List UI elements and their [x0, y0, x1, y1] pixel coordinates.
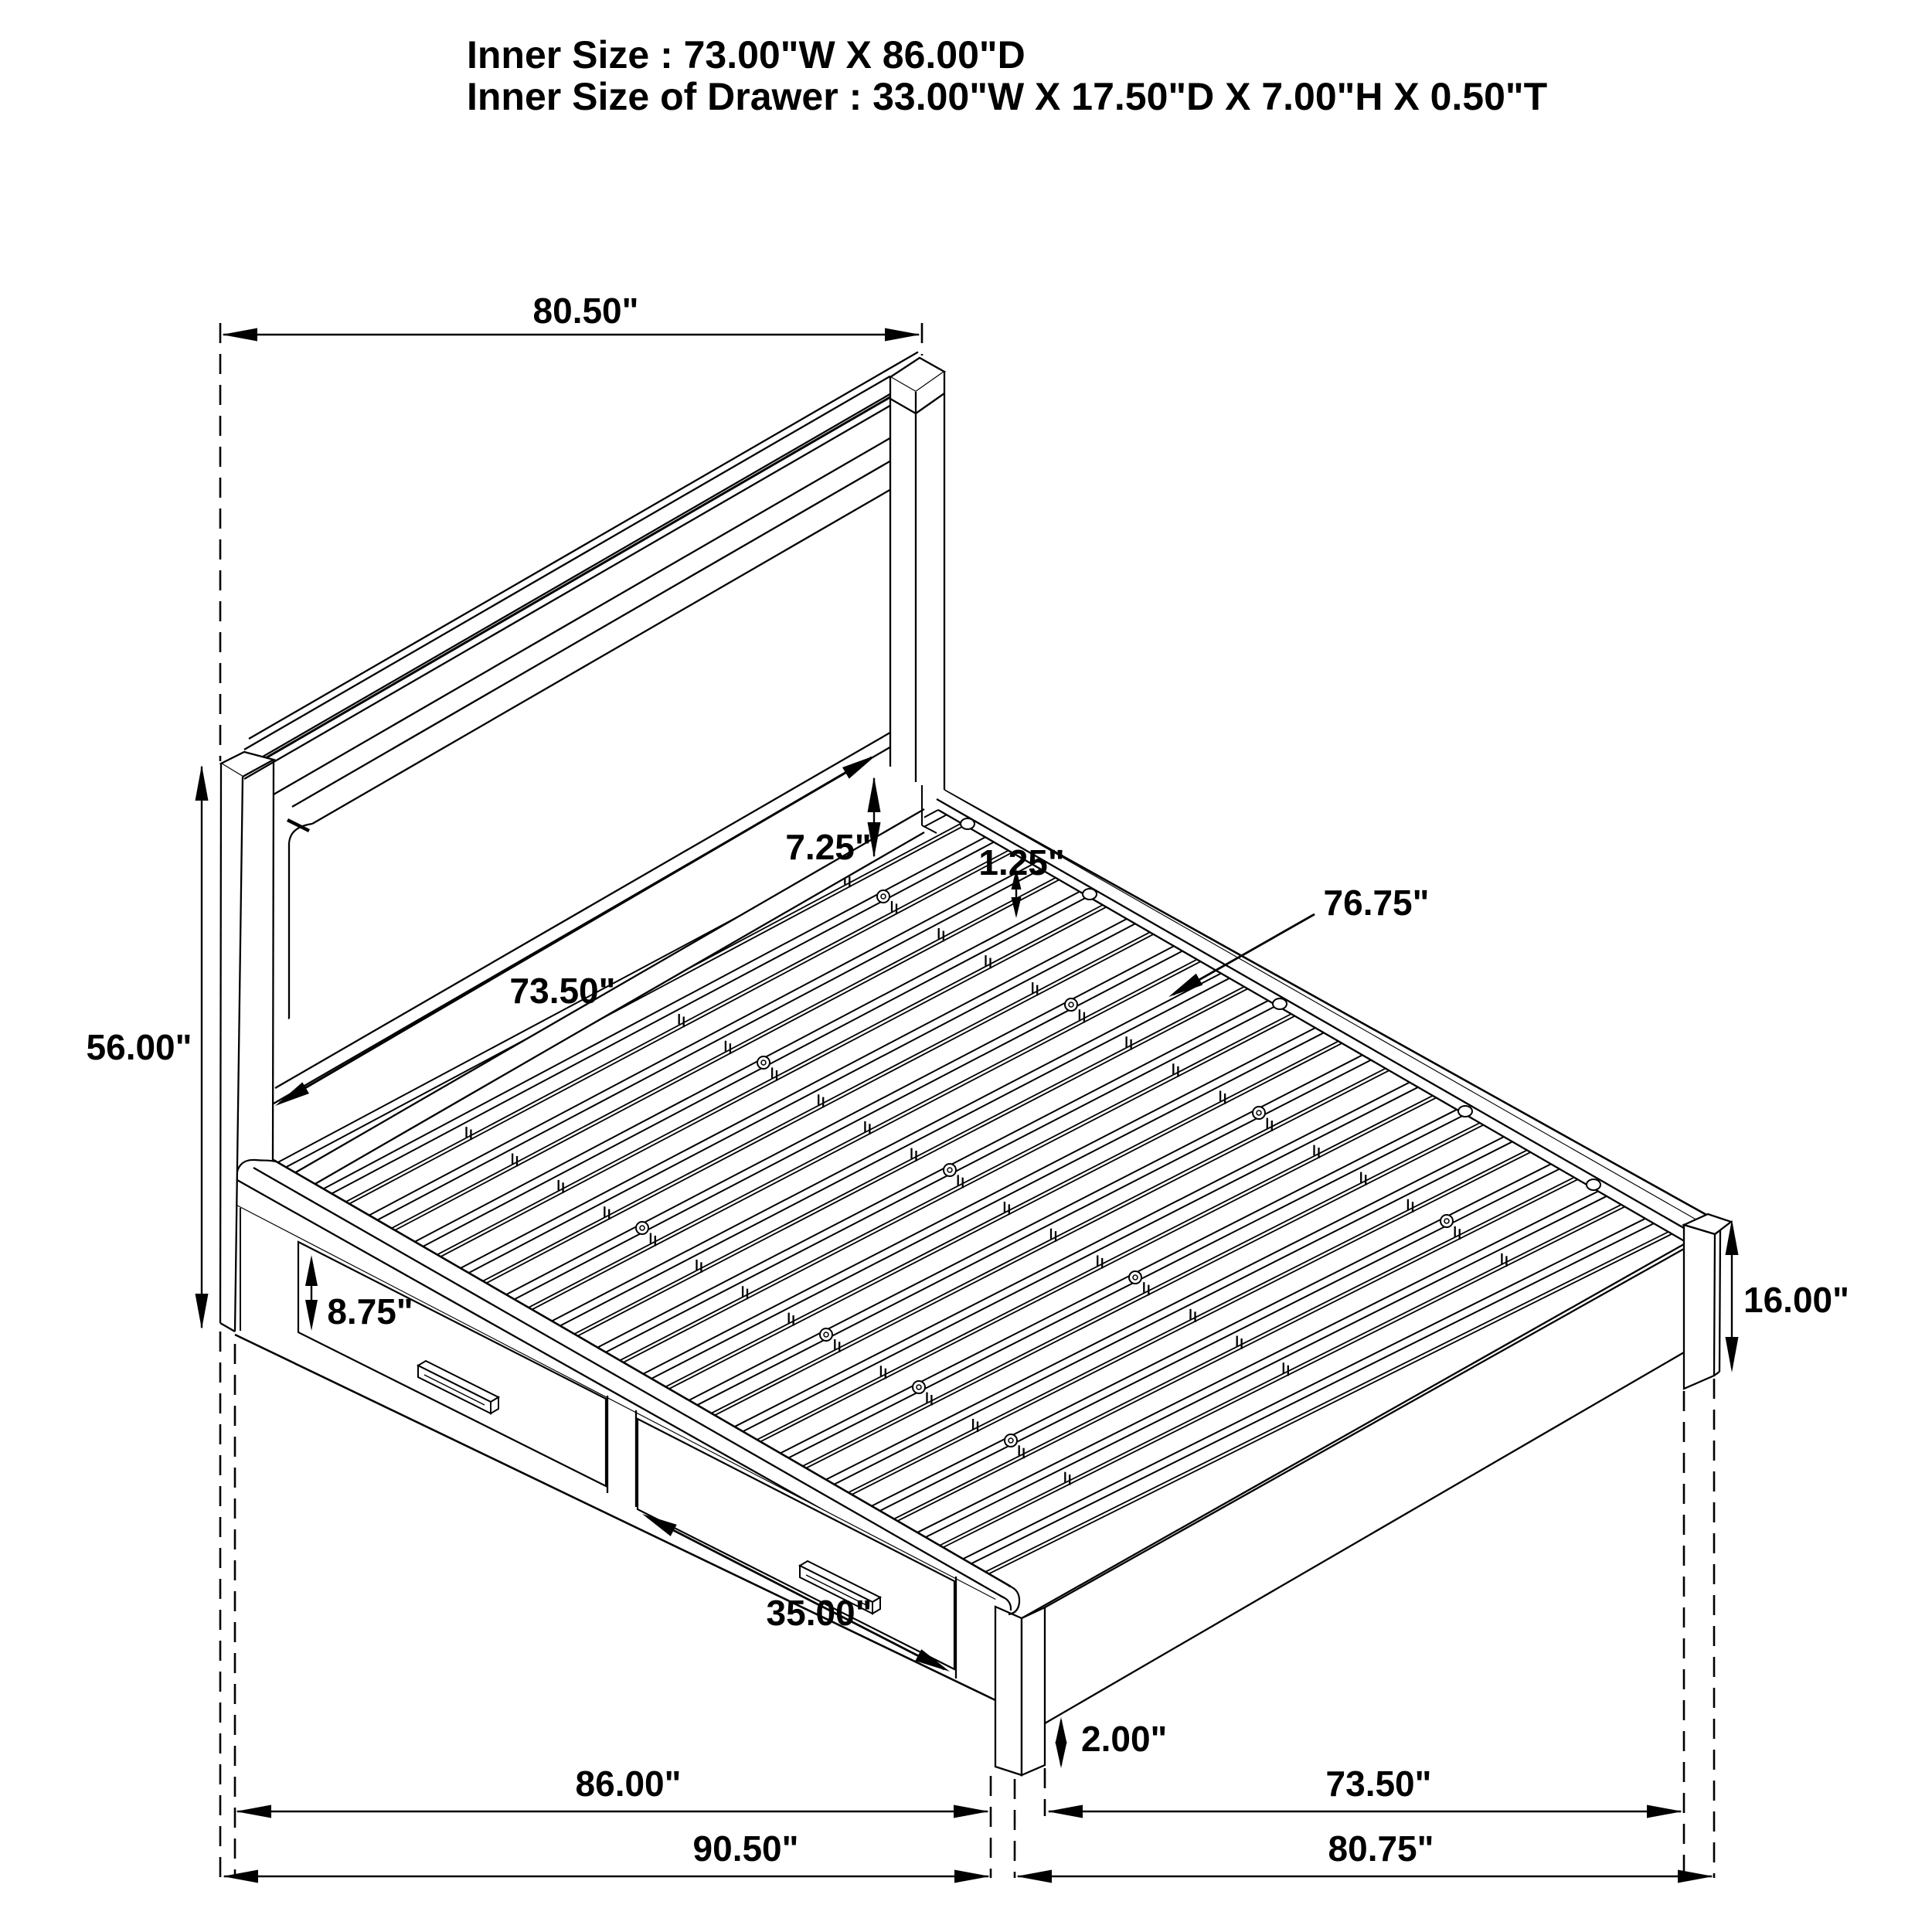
svg-text:35.00": 35.00" [767, 1593, 872, 1633]
svg-text:8.75": 8.75" [327, 1291, 413, 1332]
svg-text:73.50": 73.50" [510, 971, 616, 1011]
svg-text:76.75": 76.75" [1324, 883, 1430, 923]
svg-text:73.50": 73.50" [1326, 1764, 1432, 1804]
svg-text:1.25": 1.25" [978, 842, 1064, 883]
svg-text:80.75": 80.75" [1328, 1828, 1434, 1869]
svg-text:Inner Size of Drawer : 33.00"W: Inner Size of Drawer : 33.00"W X 17.50"D… [467, 75, 1547, 118]
svg-text:7.25": 7.25" [785, 827, 871, 867]
svg-text:16.00": 16.00" [1743, 1280, 1849, 1320]
svg-text:80.50": 80.50" [533, 291, 639, 331]
svg-text:56.00": 56.00" [87, 1027, 192, 1067]
svg-text:90.50": 90.50" [693, 1828, 799, 1869]
svg-text:Inner Size : 73.00"W X 86.00"D: Inner Size : 73.00"W X 86.00"D [467, 33, 1026, 77]
svg-text:2.00": 2.00" [1081, 1719, 1167, 1759]
svg-text:86.00": 86.00" [576, 1764, 682, 1804]
